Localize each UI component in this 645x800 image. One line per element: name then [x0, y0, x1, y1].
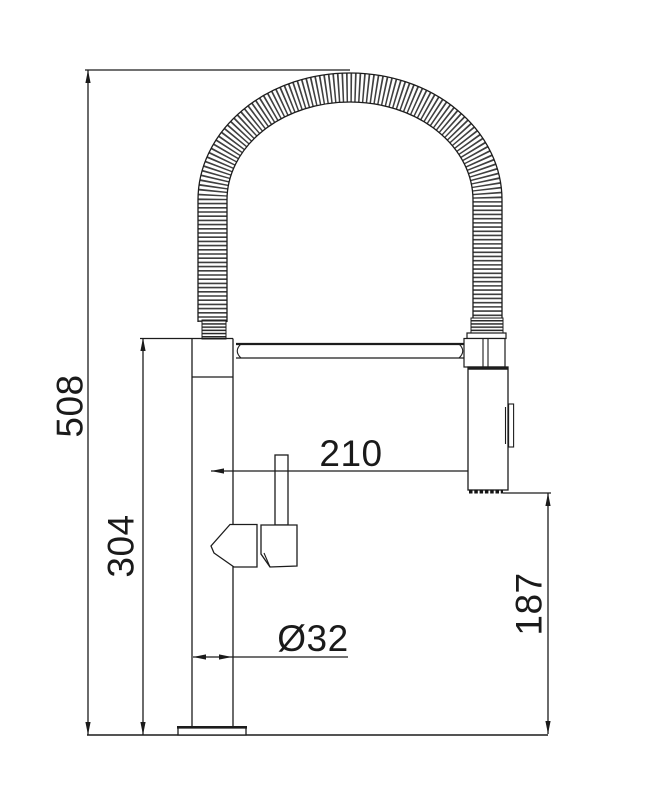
dimension-label-outlet-height: 187 — [509, 572, 550, 635]
pipe-left-socket — [237, 344, 241, 358]
base-plate — [177, 727, 247, 735]
spring-hose — [198, 73, 502, 322]
hose-nut-left — [202, 320, 226, 339]
handle-cartridge-body — [261, 525, 297, 567]
pipe-right-socket — [459, 344, 463, 358]
dimension-label-base-diameter: Ø32 — [277, 618, 348, 659]
hose-inner-edge — [227, 102, 473, 322]
arrow-up-icon — [85, 70, 90, 83]
dimension-label-spout-reach: 210 — [319, 433, 382, 474]
handle-lever-wedge — [211, 525, 257, 568]
spray-head-clip — [509, 404, 514, 447]
spray-head-connector-block — [464, 339, 505, 368]
arrow-up-icon — [545, 493, 550, 506]
hose-nut-right — [471, 318, 503, 333]
arrow-down-icon — [545, 721, 550, 734]
dimension-body-height — [140, 338, 192, 735]
arrow-down-icon — [85, 722, 90, 735]
faucet-technical-drawing: 508 304 210 Ø32 187 — [0, 0, 645, 800]
spray-head-collar — [467, 333, 506, 339]
hose-corrugation-texture — [213, 88, 488, 323]
arrow-right-icon — [219, 654, 232, 659]
drawing-svg: 508 304 210 Ø32 187 — [0, 0, 645, 800]
spray-head — [464, 339, 514, 492]
hose-outer-edge — [198, 73, 502, 322]
spray-head-body — [468, 367, 508, 490]
handle-stem — [275, 455, 288, 525]
arrow-up-icon — [140, 338, 145, 351]
dimension-label-overall-height: 508 — [50, 374, 91, 437]
arrow-down-icon — [140, 722, 145, 735]
arrow-left-icon — [193, 654, 206, 659]
spout-pipe — [236, 344, 464, 358]
arrow-left-icon — [211, 468, 224, 473]
dimension-label-body-height: 304 — [101, 514, 142, 577]
